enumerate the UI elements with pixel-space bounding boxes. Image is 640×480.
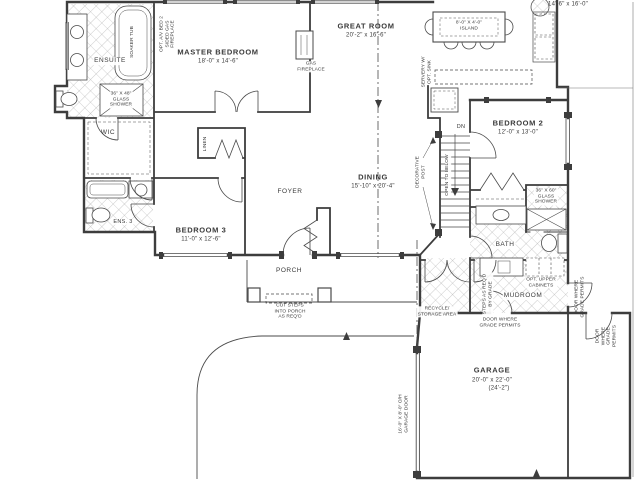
label-servery: SERVERY W/ OPT. SINK bbox=[421, 57, 432, 88]
room-label-wic: WIC bbox=[101, 129, 115, 137]
label-cut-steps: CUT STEPS INTO PORCH AS REQ'D bbox=[274, 304, 305, 321]
porch-edge bbox=[247, 260, 417, 302]
ensuite-vanity bbox=[67, 14, 87, 80]
room-label-bath: BATH bbox=[495, 241, 516, 249]
garage-door-panel bbox=[416, 353, 419, 472]
label-linen: LINEN bbox=[203, 137, 209, 152]
wic-shelving bbox=[88, 122, 150, 174]
room-label-mudroom: MUDROOM bbox=[503, 292, 544, 300]
room-label-dining: DINING bbox=[358, 174, 388, 183]
label-gas-fireplace: GAS FIREPLACE bbox=[296, 61, 326, 72]
room-dims-master-bedroom: 18'-0" x 14'-6" bbox=[198, 58, 238, 65]
bath-vanity bbox=[476, 206, 526, 224]
label-glass-shower-bath: 36" X 60" GLASS SHOWER bbox=[534, 189, 558, 206]
porch-post bbox=[248, 288, 260, 302]
label-opt-upper-cabinets: OPT. UPPER CABINETS bbox=[525, 277, 557, 288]
section-marker bbox=[533, 469, 540, 477]
bath-toilet bbox=[558, 234, 567, 253]
gas-fireplace-box bbox=[296, 31, 313, 59]
kitchen-appliance bbox=[535, 14, 553, 35]
room-label-porch: PORCH bbox=[276, 267, 302, 275]
label-door-grade-1: DOOR WHERE GRADE PERMITS bbox=[574, 276, 585, 317]
porch-post bbox=[318, 288, 331, 302]
room-dims2-garage: (24'-2") bbox=[489, 385, 510, 392]
room-label-great-room: GREAT ROOM bbox=[337, 23, 394, 32]
label-glass-shower-master: 36" X 48" GLASS SHOWER bbox=[109, 92, 133, 109]
section-marker bbox=[375, 100, 382, 108]
label-soaker-tub: SOAKER TUB bbox=[130, 26, 136, 58]
mudroom-cubbies bbox=[526, 258, 564, 276]
floor-plan-canvas: MASTER BEDROOM 18'-0" x 14'-6" ENSUITE S… bbox=[0, 0, 640, 480]
servery-cabinet bbox=[431, 88, 458, 112]
label-island: 8'-0" X 4'-0" ISLAND bbox=[456, 20, 482, 31]
label-door-grade-2: DOOR WHERE GRADE PERMITS bbox=[596, 320, 619, 353]
label-steps-by-grade: STEPS AS REQ'D BY GRADE bbox=[482, 273, 493, 316]
room-dims-bedroom2: 12'-0" x 13'-0" bbox=[498, 129, 538, 136]
label-dn: DN bbox=[457, 124, 466, 130]
label-decorative-post: DECORATIVE POST bbox=[415, 156, 426, 188]
room-dims-dining: 15'-10" x 20'-4" bbox=[351, 183, 394, 190]
label-garage-door: 16'-0" X 8'-0" O/H GARAGE DOOR bbox=[398, 394, 409, 433]
room-label-bedroom2: BEDROOM 2 bbox=[493, 120, 544, 129]
label-open-to-below: OPEN TO BELOW bbox=[445, 153, 451, 196]
room-label-garage: GARAGE bbox=[474, 367, 511, 376]
kitchen-counter bbox=[435, 70, 532, 84]
kitchen-sink bbox=[531, 0, 549, 16]
label-opt-fireplace: OPT. A/V BED 2 SIDED GAS FIREPLACE bbox=[160, 16, 177, 52]
room-dims-bedroom3: 11'-0" x 12'-6" bbox=[181, 236, 220, 243]
room-label-bedroom3: BEDROOM 3 bbox=[176, 227, 227, 236]
label-door-grade-3: DOOR WHERE GRADE PERMITS bbox=[478, 317, 521, 328]
bath-shower bbox=[527, 209, 566, 230]
front-door bbox=[283, 228, 310, 255]
driveway-edge bbox=[197, 336, 414, 479]
room-dims-great-room: 20'-2" x 16'-6" bbox=[346, 32, 386, 39]
stair-post bbox=[435, 131, 442, 138]
room-label-foyer: FOYER bbox=[278, 188, 303, 196]
master-double-door bbox=[215, 91, 258, 112]
stair-post bbox=[435, 229, 442, 236]
room-label-ens3: ENS. 3 bbox=[112, 219, 133, 225]
linen-bifold bbox=[215, 140, 243, 158]
kitchen-appliance bbox=[535, 37, 553, 59]
foyer-closet-bifold bbox=[304, 220, 317, 254]
label-recycle-storage: RECYCLE/ STORAGE AREA bbox=[417, 306, 458, 317]
room-label-master-bedroom: MASTER BEDROOM bbox=[177, 49, 258, 58]
room-dims-garage: 20'-0" x 22'-0" bbox=[472, 377, 512, 384]
room-dims-kitchen: 14'-6" x 16'-0" bbox=[548, 1, 588, 8]
room-label-ensuite: ENSUITE bbox=[93, 57, 127, 65]
ens3-tub bbox=[87, 181, 128, 198]
bedroom2-closet-bifold bbox=[480, 173, 524, 190]
